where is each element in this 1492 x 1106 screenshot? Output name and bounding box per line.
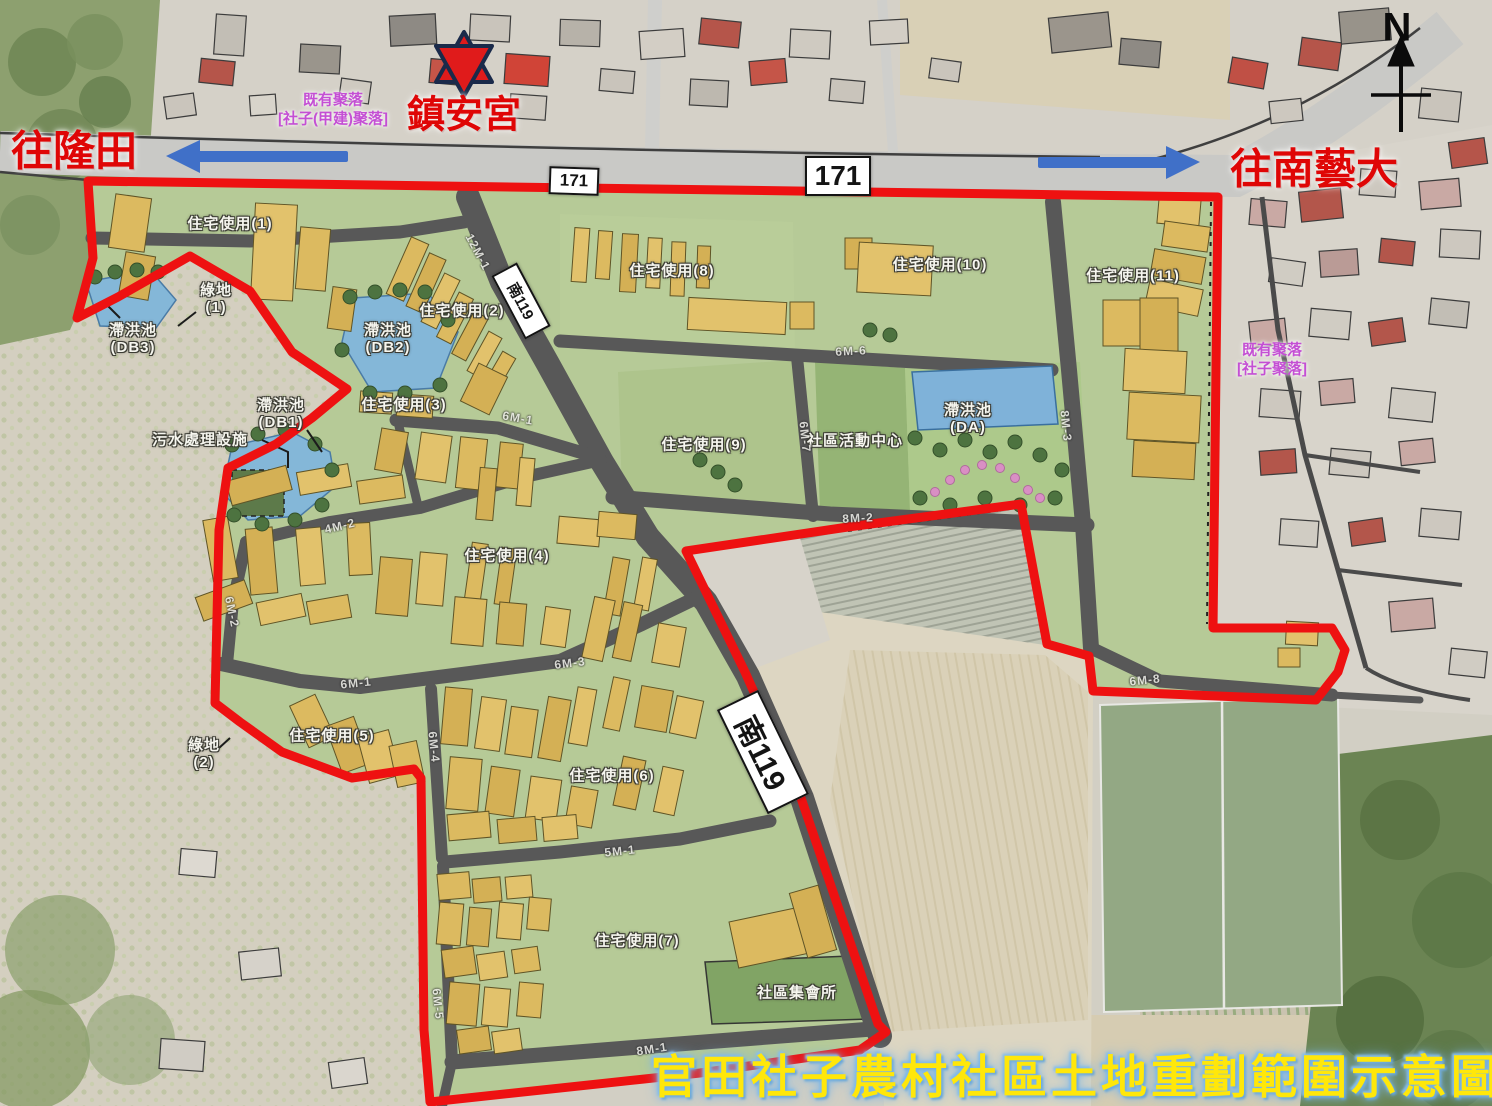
compass-n-label: N — [1383, 6, 1412, 51]
building — [497, 816, 537, 843]
building — [829, 79, 865, 104]
building — [441, 687, 473, 746]
building — [199, 58, 235, 85]
land-rezoning-map: 往隆田 往南藝大 鎮安宮 N 官田社子農村社區土地重劃範圍示意圖 既有聚落 [社… — [0, 0, 1492, 1106]
building — [328, 1058, 367, 1089]
tree-icon — [1033, 448, 1047, 462]
zone-label-da: 滯洪池 (DA) — [944, 403, 992, 437]
building — [689, 79, 728, 107]
flower-icon — [1011, 474, 1020, 483]
building — [1298, 37, 1342, 70]
zone-label-activity-center: 社區活動中心 — [807, 430, 903, 451]
building — [517, 982, 544, 1018]
zone-label-db1-l1: 滯洪池 — [257, 398, 305, 415]
zone-label-green2: 綠地 (2) — [188, 738, 220, 772]
building — [446, 757, 482, 812]
road-label-8m2: 8M-2 — [842, 510, 874, 526]
tree-icon — [913, 491, 927, 505]
tree-icon — [1055, 463, 1069, 477]
zone-label-db2-l2: (DB2) — [364, 340, 412, 357]
tree-icon — [863, 323, 877, 337]
building — [1448, 138, 1487, 169]
building — [456, 1026, 491, 1054]
building — [560, 19, 601, 46]
building — [1389, 388, 1436, 422]
building — [1399, 438, 1435, 465]
building — [179, 848, 217, 877]
building — [687, 297, 787, 334]
building — [1269, 98, 1303, 123]
building — [1279, 519, 1319, 548]
building — [1368, 318, 1405, 346]
building — [1127, 392, 1201, 443]
tree-icon — [978, 491, 992, 505]
building — [1419, 88, 1462, 122]
tree-icon — [343, 290, 357, 304]
building — [504, 54, 550, 87]
building — [525, 776, 562, 822]
zone-label-res7: 住宅使用(7) — [594, 930, 679, 951]
zone-label-db3-l2: (DB3) — [109, 340, 157, 357]
building — [441, 946, 477, 978]
road-label-6m6: 6M-6 — [835, 343, 867, 359]
zone-label-da-l1: 滯洪池 — [944, 403, 992, 420]
building — [1439, 229, 1480, 259]
building — [481, 987, 510, 1027]
tree-icon — [288, 513, 302, 527]
building — [476, 951, 507, 981]
building — [1449, 648, 1488, 678]
tree-icon — [883, 328, 897, 342]
building — [415, 432, 452, 483]
building — [789, 29, 830, 59]
temple-name-label: 鎮安宮 — [407, 84, 521, 139]
zone-label-res5: 住宅使用(5) — [289, 725, 374, 746]
building — [1389, 598, 1435, 632]
zone-label-assembly-hall: 社區集會所 — [757, 982, 837, 1003]
building — [447, 811, 491, 841]
zone-label-res11: 住宅使用(11) — [1086, 265, 1180, 286]
zone-label-res10: 住宅使用(10) — [893, 254, 988, 275]
building — [1429, 298, 1470, 328]
building — [542, 815, 578, 842]
building — [1103, 300, 1145, 346]
building — [239, 948, 282, 980]
tree-icon — [335, 343, 349, 357]
zone-label-db3-l1: 滯洪池 — [109, 323, 157, 340]
building — [599, 69, 635, 94]
building — [245, 527, 278, 595]
building — [1379, 238, 1415, 265]
building — [1419, 508, 1461, 539]
building — [527, 897, 552, 931]
building — [1309, 308, 1351, 339]
building — [557, 516, 601, 547]
building — [416, 552, 447, 606]
building — [296, 527, 326, 586]
building — [466, 907, 491, 947]
direction-label-east: 往南藝大 — [1230, 136, 1398, 197]
building — [1132, 440, 1196, 479]
building — [451, 597, 487, 647]
building — [446, 982, 480, 1026]
building — [1419, 178, 1461, 209]
tree-icon — [433, 378, 447, 392]
flower-icon — [1024, 486, 1033, 495]
zone-label-res3: 住宅使用(3) — [361, 394, 446, 415]
zone-label-green1: 綠地 (1) — [200, 283, 232, 317]
zone-label-res8: 住宅使用(8) — [629, 260, 714, 281]
building — [1259, 449, 1297, 475]
cluster-label-shezi: 既有聚落 [社子聚落] — [1237, 341, 1307, 379]
flower-icon — [1036, 494, 1045, 503]
building — [869, 19, 908, 45]
tree-icon — [130, 263, 144, 277]
building — [749, 58, 787, 85]
building — [159, 1039, 205, 1072]
building — [929, 58, 961, 82]
zone-label-res1: 住宅使用(1) — [187, 213, 272, 234]
tree-icon — [108, 265, 122, 279]
building — [505, 875, 533, 899]
zone-label-green2-l2: (2) — [188, 755, 220, 772]
building — [1123, 348, 1187, 393]
cluster-label-jiajian: 既有聚落 [社子(甲建)聚落] — [278, 91, 388, 129]
tree-icon — [933, 443, 947, 457]
zone-label-db1-l2: (DB1) — [257, 415, 305, 432]
building — [639, 28, 685, 59]
zone-label-res6: 住宅使用(6) — [569, 765, 654, 786]
map-title: 官田社子農村社區土地重劃範圍示意圖 — [651, 1041, 1492, 1106]
building — [1228, 57, 1268, 89]
building — [511, 946, 540, 973]
tree-icon — [1008, 435, 1022, 449]
building — [1249, 198, 1287, 227]
building — [299, 44, 340, 74]
zone-label-db2: 滯洪池 (DB2) — [364, 323, 412, 357]
building — [469, 14, 510, 42]
tree-icon — [693, 453, 707, 467]
tree-icon — [983, 445, 997, 459]
tree-icon — [368, 285, 382, 299]
building — [699, 18, 741, 48]
direction-label-west: 往隆田 — [11, 118, 137, 179]
building — [492, 1028, 523, 1054]
road-badge-171: 171 — [805, 156, 871, 196]
building — [540, 606, 570, 647]
zone-label-res9: 住宅使用(9) — [661, 434, 746, 455]
building — [635, 686, 674, 733]
building — [214, 14, 247, 56]
building — [790, 302, 814, 329]
building — [595, 231, 612, 280]
building — [496, 602, 527, 646]
tree-icon — [325, 463, 339, 477]
building — [436, 902, 464, 946]
zone-label-db3: 滯洪池 (DB3) — [109, 323, 157, 357]
zone-label-da-l2: (DA) — [944, 420, 992, 437]
building — [1278, 648, 1300, 667]
zone-label-green1-l1: 綠地 — [200, 283, 232, 300]
building — [249, 94, 276, 116]
tree-icon — [728, 478, 742, 492]
zone-label-res4: 住宅使用(4) — [464, 545, 549, 566]
building — [1048, 12, 1111, 53]
building — [1119, 38, 1161, 67]
cluster-label-jiajian-l1: 既有聚落 — [278, 91, 388, 110]
building — [437, 872, 471, 901]
road-badge-171-small: 171 — [549, 166, 600, 196]
building — [108, 194, 151, 252]
building — [1319, 379, 1355, 406]
building — [389, 14, 437, 46]
tree-icon — [393, 283, 407, 297]
flower-icon — [931, 488, 940, 497]
zone-label-sewage: 污水處理設施 — [152, 429, 248, 450]
building — [597, 511, 637, 539]
tree-icon — [711, 465, 725, 479]
building — [472, 877, 502, 903]
building — [1319, 249, 1359, 278]
cluster-label-jiajian-l2: [社子(甲建)聚落] — [278, 110, 388, 129]
building — [496, 902, 523, 940]
flower-icon — [961, 466, 970, 475]
tree-icon — [255, 517, 269, 531]
tree-icon — [1048, 491, 1062, 505]
flower-icon — [996, 464, 1005, 473]
zone-label-res2: 住宅使用(2) — [419, 300, 504, 321]
sports-field — [1100, 697, 1342, 1012]
flower-icon — [978, 461, 987, 470]
tree-icon — [315, 498, 329, 512]
building — [485, 766, 520, 817]
cluster-label-shezi-l2: [社子聚落] — [1237, 360, 1307, 379]
zone-label-db1: 滯洪池 (DB1) — [257, 398, 305, 432]
cluster-label-shezi-l1: 既有聚落 — [1237, 341, 1307, 360]
building — [295, 227, 330, 291]
tree-icon — [908, 431, 922, 445]
building — [1348, 518, 1385, 546]
building — [376, 557, 413, 617]
road — [1332, 695, 1420, 700]
building — [164, 93, 197, 119]
zone-label-green1-l2: (1) — [200, 300, 232, 317]
tree-icon — [227, 508, 241, 522]
building — [571, 228, 590, 283]
zone-label-green2-l1: 綠地 — [188, 738, 220, 755]
tree-icon — [418, 285, 432, 299]
flower-icon — [946, 476, 955, 485]
zone-label-db2-l1: 滯洪池 — [364, 323, 412, 340]
